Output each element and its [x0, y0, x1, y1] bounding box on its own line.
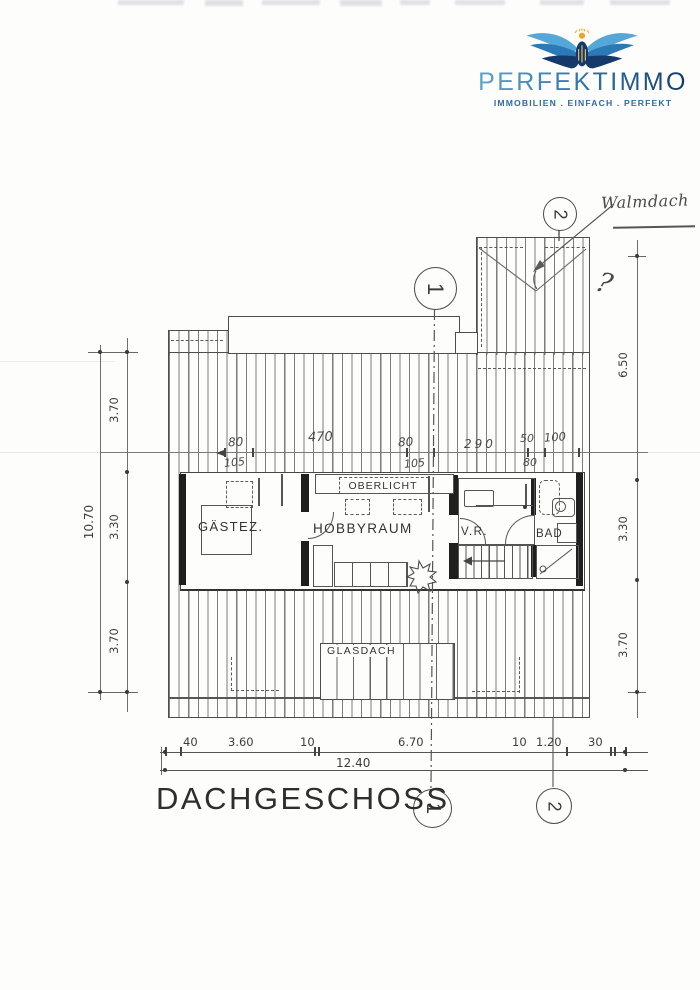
cabinet: [313, 545, 333, 587]
dim-left-seg-2: 3.70: [107, 621, 121, 661]
handwritten-note: Walmdach: [601, 190, 690, 212]
dim-bottom-seg-5: 1.20: [536, 735, 562, 749]
section-marker-digit: 2: [549, 209, 570, 219]
scan-artifact: [118, 0, 184, 5]
dim-bottom-seg-6: 30: [588, 735, 603, 749]
brand-tagline: IMMOBILIEN . EINFACH . PERFEKT: [478, 98, 688, 108]
dim-dot: [98, 690, 102, 694]
skylight-dashed-box: [393, 499, 422, 515]
dim-dot: [125, 470, 129, 474]
dim-top-sub-1: 105: [403, 456, 425, 471]
dim-tick: [180, 747, 182, 756]
scan-artifact: [205, 0, 243, 6]
dim-bottom-seg-2: 10: [300, 735, 315, 749]
room-label-hobbyraum: HOBBYRAUM: [313, 521, 413, 536]
tower-dashed-line: [545, 247, 585, 248]
post-tick: [428, 476, 430, 512]
wall: [301, 541, 309, 586]
dim-crossbar: [88, 692, 138, 693]
post-tick: [281, 474, 283, 506]
dim-top-sub-0: 105: [223, 455, 245, 470]
scan-artifact: [455, 0, 505, 5]
dim-dot: [125, 690, 129, 694]
skylight-dashed-box: [226, 481, 253, 508]
dim-dot: [623, 768, 627, 772]
dim-dot: [635, 478, 639, 482]
dim-top-sub-2: 80: [523, 456, 537, 469]
dim-tick: [252, 448, 254, 457]
brand-name: PERFEKTIMMO: [478, 68, 688, 97]
tower-dashed-line: [479, 247, 523, 248]
scan-artifact: [610, 0, 670, 5]
dim-dot: [98, 350, 102, 354]
wall: [179, 474, 186, 585]
scan-artifact: [262, 0, 320, 5]
hip-dashed-line: [231, 690, 279, 691]
plan-title: DACHGESCHOSS: [156, 781, 450, 817]
dim-top-seg-4: 50: [520, 432, 534, 445]
skylight-dashed-box: [345, 499, 370, 515]
roof-hatch-tower: [476, 237, 590, 355]
section-marker-digit: 1: [423, 282, 449, 294]
hip-dashed-line: [231, 657, 232, 691]
dim-left-inner-line: [127, 338, 128, 712]
dim-tick: [406, 448, 408, 457]
dim-tick: [433, 448, 435, 457]
dim-left-outer-line: [100, 345, 101, 700]
tower-dashed-line: [481, 247, 482, 347]
dim-bottom-seg-1: 3.60: [228, 735, 254, 749]
dim-right-seg-2: 3.70: [616, 625, 630, 665]
dim-bottom-seg-4: 10: [512, 735, 527, 749]
room-label-oberlicht: OBERLICHT: [341, 480, 425, 492]
scan-artifact: [400, 0, 430, 5]
handwritten-question-mark: ?: [592, 267, 617, 300]
dim-top-line: [100, 452, 648, 453]
door-hinge-dot: [523, 505, 527, 509]
section-marker-2-bottom: 2: [536, 788, 572, 824]
dim-dot: [163, 750, 167, 754]
dim-dot: [635, 578, 639, 582]
hip-dashed-line: [472, 691, 520, 692]
dim-tick: [544, 448, 546, 457]
dim-top-seg-0: 80: [228, 435, 244, 450]
dim-tick: [614, 747, 616, 756]
dim-bottom-seg-3: 6.70: [398, 735, 424, 749]
roof-hatch-left-block: [168, 330, 230, 354]
dim-dot: [623, 750, 627, 754]
scan-artifact: [340, 0, 382, 6]
dim-left-seg-1: 3.30: [107, 507, 121, 547]
dim-right-seg-1: 3.30: [616, 509, 630, 549]
wall: [449, 543, 458, 579]
dim-right-seg-0: 6.50: [616, 345, 630, 385]
dim-top-seg-5: 100: [544, 429, 567, 444]
bench-line: [493, 491, 494, 505]
post-tick: [258, 478, 260, 506]
dim-tick: [578, 448, 580, 457]
dim-bottom-total: 12.40: [336, 756, 370, 770]
dim-tick: [610, 747, 612, 756]
note-underline: [613, 225, 695, 228]
dim-crossbar: [88, 352, 138, 353]
fold-line: [0, 361, 115, 362]
dim-dot: [635, 690, 639, 694]
dim-dot: [635, 254, 639, 258]
roof-dashed-line: [171, 340, 223, 341]
room-label-glasdach: GLASDACH: [325, 645, 398, 657]
dim-left-seg-0: 3.70: [107, 390, 121, 430]
dim-bottom-line: [160, 752, 648, 753]
dim-tick: [318, 747, 320, 756]
dim-tick: [566, 747, 568, 756]
dim-dot: [125, 580, 129, 584]
tower-dashed-line: [478, 368, 586, 369]
dim-tick: [224, 448, 226, 457]
room-label-vorraum: V.R.: [461, 526, 488, 538]
dim-dot: [163, 768, 167, 772]
door-leaf: [525, 484, 527, 507]
scanned-floor-plan-page: PERFEKTIMMO IMMOBILIEN . EINFACH . PERFE…: [0, 0, 700, 990]
section-marker-digit: 2: [543, 801, 564, 811]
section-marker-1-top: 1: [414, 267, 457, 310]
dim-bottom-total-line: [160, 770, 648, 771]
dim-top-seg-1: 470: [308, 430, 333, 446]
dim-left-total: 10.70: [82, 499, 96, 545]
sofa: [334, 562, 408, 587]
shower-cell: [536, 545, 579, 579]
dim-arrowhead: [216, 450, 224, 456]
dim-top-seg-3: 290: [464, 437, 496, 451]
section-marker-2-top: 2: [543, 197, 577, 231]
dormer-step: [455, 332, 478, 354]
dim-dot: [125, 350, 129, 354]
room-label-gaestezimmer: GÄSTEZ.: [198, 519, 263, 534]
dim-top-seg-2: 80: [398, 435, 414, 450]
room-label-bad: BAD: [536, 528, 563, 540]
staircase: [458, 545, 533, 579]
scan-artifact: [540, 0, 584, 5]
dim-bottom-seg-0: 40: [183, 735, 198, 749]
wall: [301, 474, 309, 512]
brand-logo: PERFEKTIMMO IMMOBILIEN . EINFACH . PERFE…: [478, 26, 688, 110]
dormer-flat-roof: [228, 316, 460, 354]
hip-dashed-line: [519, 657, 520, 693]
toilet-bowl: [555, 501, 566, 512]
